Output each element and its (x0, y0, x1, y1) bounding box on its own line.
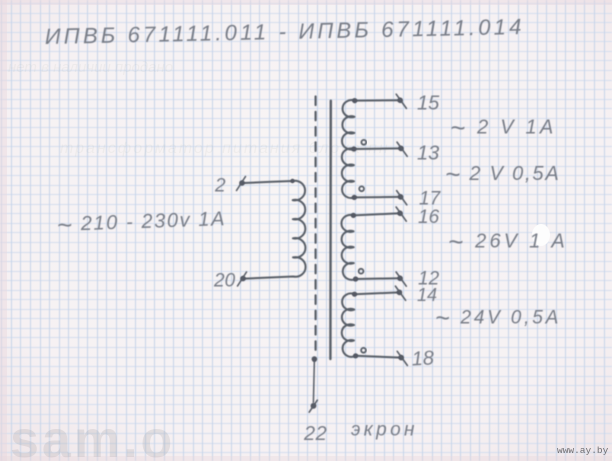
svg-text:www.ay.by: www.ay.by (557, 445, 609, 456)
svg-text:15: 15 (417, 93, 440, 115)
svg-text:18: 18 (411, 347, 434, 370)
svg-text:~ 2 V 1A: ~ 2 V 1A (450, 113, 556, 143)
svg-text:13: 13 (417, 143, 439, 165)
svg-text:20: 20 (213, 271, 236, 292)
svg-text:трансформатор питания блока пн: трансформатор питания блока пн (60, 140, 390, 157)
svg-text:16: 16 (418, 207, 440, 228)
svg-text:нет в наличии продано: нет в наличии продано (8, 59, 173, 76)
svg-text:~ 2 V 0,5A: ~ 2 V 0,5A (445, 159, 560, 189)
svg-text:экрон: экрон (351, 420, 418, 441)
svg-text:~ 24V 0,5A: ~ 24V 0,5A (435, 305, 561, 333)
svg-text:14: 14 (417, 285, 437, 305)
svg-text:22: 22 (303, 423, 327, 445)
svg-text:sam.o: sam.o (10, 411, 175, 461)
svg-text:2: 2 (214, 176, 226, 197)
svg-text:~ 26V 1 A: ~ 26V 1 A (448, 227, 568, 257)
